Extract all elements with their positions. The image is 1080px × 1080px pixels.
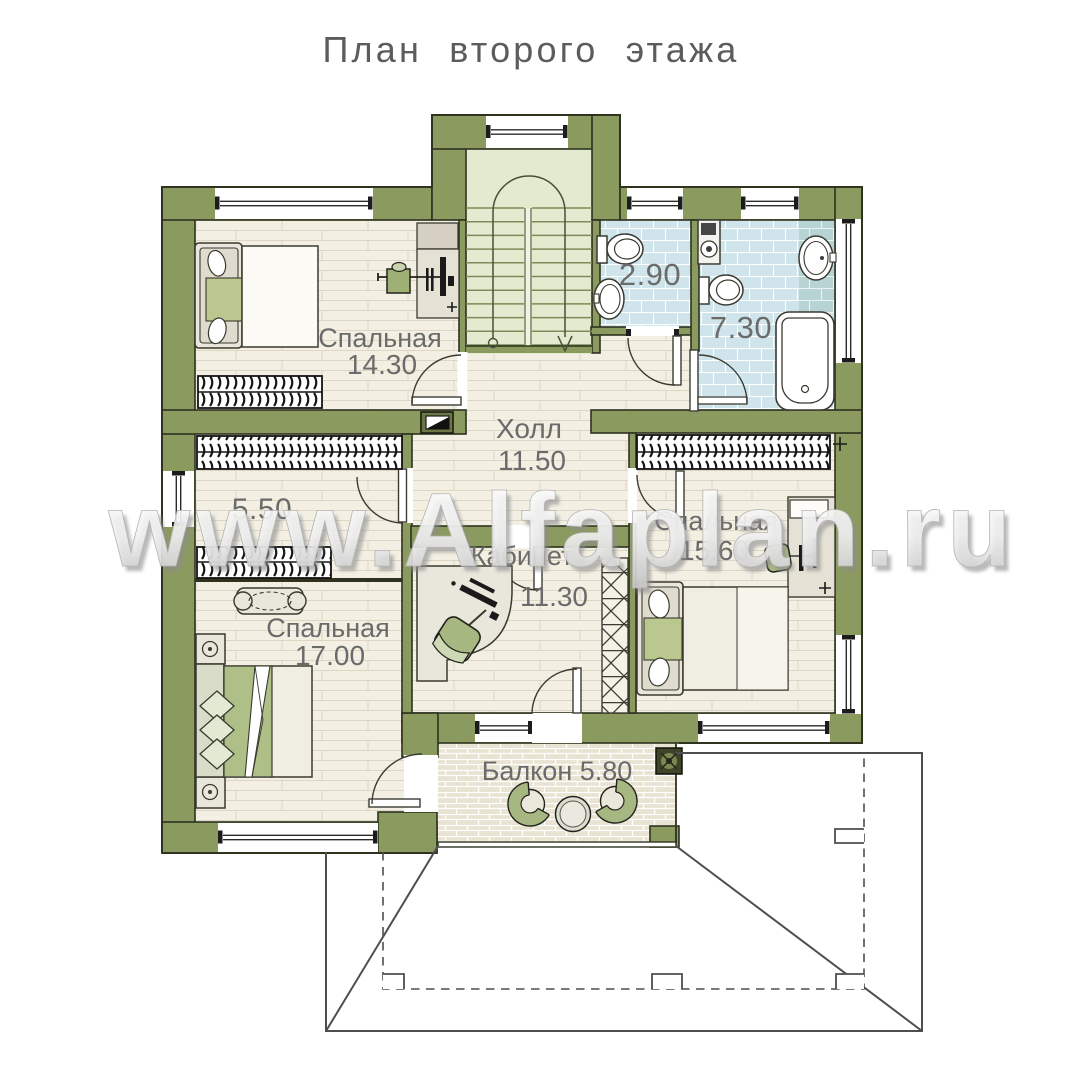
- svg-text:7.30: 7.30: [710, 310, 772, 345]
- svg-text:Холл: Холл: [496, 413, 562, 444]
- svg-text:17.00: 17.00: [295, 640, 365, 671]
- svg-text:2.90: 2.90: [619, 257, 681, 292]
- svg-text:Балкон 5.80: Балкон 5.80: [482, 756, 633, 786]
- svg-text:www.Alfaplan.ru: www.Alfaplan.ru: [108, 472, 1018, 589]
- svg-text:14.30: 14.30: [347, 349, 417, 380]
- svg-text:План второго этажа: План второго этажа: [322, 29, 739, 70]
- svg-text:Спальная: Спальная: [266, 613, 390, 643]
